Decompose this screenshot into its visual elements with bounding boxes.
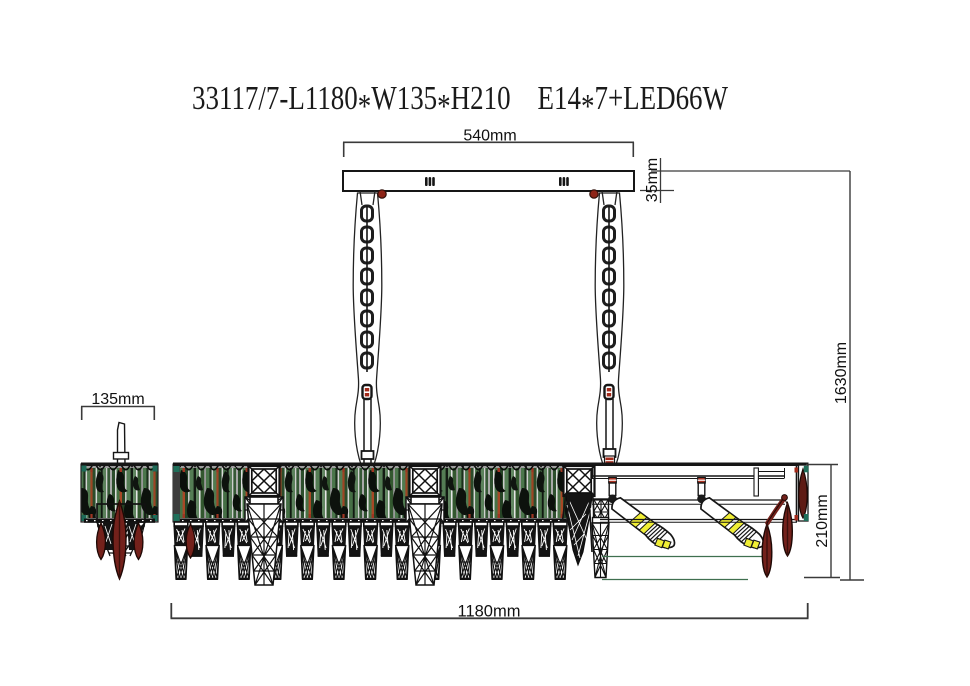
svg-text:135mm: 135mm	[91, 391, 144, 408]
svg-text:1180mm: 1180mm	[458, 603, 521, 621]
svg-text:1630mm: 1630mm	[833, 342, 850, 404]
svg-text:210mm: 210mm	[814, 494, 831, 547]
svg-text:540mm: 540mm	[463, 128, 516, 145]
svg-text:35mm: 35mm	[644, 158, 661, 202]
